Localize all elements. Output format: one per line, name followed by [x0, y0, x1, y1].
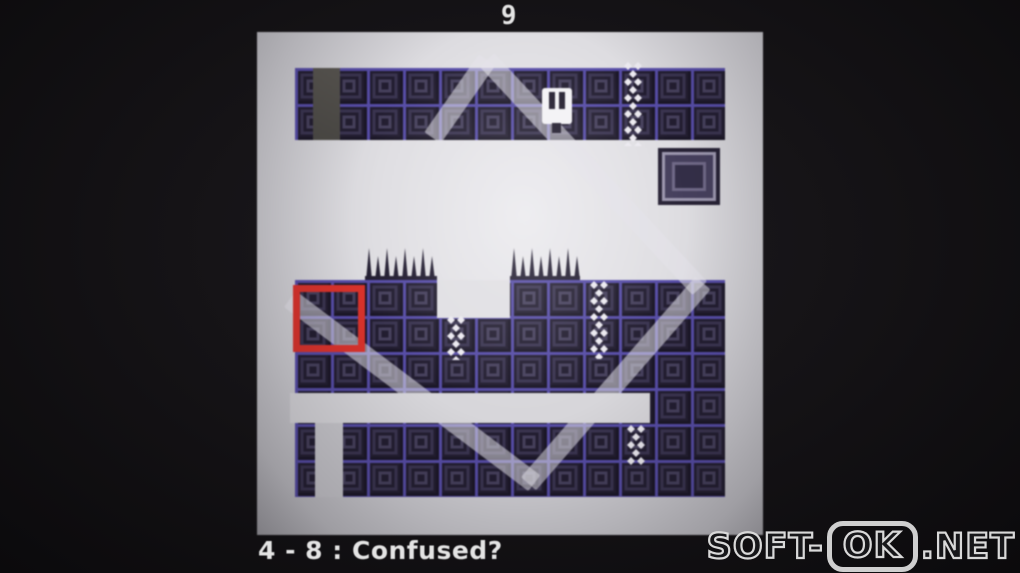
- player-eye: [559, 92, 565, 109]
- tile-block: [658, 148, 720, 205]
- hud-bottom-bar: 4 - 8 : Confused? SOFT- OK .NET: [0, 535, 1020, 573]
- game-frame: 9: [0, 0, 1020, 573]
- room-name-label: 4 - 8 : Confused?: [258, 536, 503, 565]
- spike-row: [510, 245, 580, 280]
- passage-slot: [315, 423, 343, 497]
- passage-gap: [437, 280, 510, 318]
- watermark-suffix: .NET: [921, 527, 1015, 567]
- watermark-box: OK: [827, 521, 918, 572]
- player-body: [542, 88, 572, 124]
- player-eye: [549, 92, 555, 109]
- watermark: SOFT- OK .NET: [707, 521, 1015, 572]
- hud-top-bar: 9: [0, 0, 1020, 32]
- spike-row: [365, 245, 437, 280]
- tile-block-core: [672, 162, 706, 191]
- platform-bar: [290, 393, 650, 423]
- highlight-box-red: [293, 285, 365, 352]
- player-legs: [552, 123, 561, 133]
- chain-decoration: [625, 425, 647, 465]
- chain-decoration: [622, 62, 644, 146]
- game-room: [257, 32, 763, 535]
- player-sprite: [542, 88, 572, 134]
- watermark-prefix: SOFT-: [707, 527, 824, 567]
- chain-decoration: [445, 316, 467, 360]
- chain-decoration: [588, 281, 610, 359]
- gray-door: [313, 68, 340, 140]
- level-counter: 9: [501, 1, 517, 31]
